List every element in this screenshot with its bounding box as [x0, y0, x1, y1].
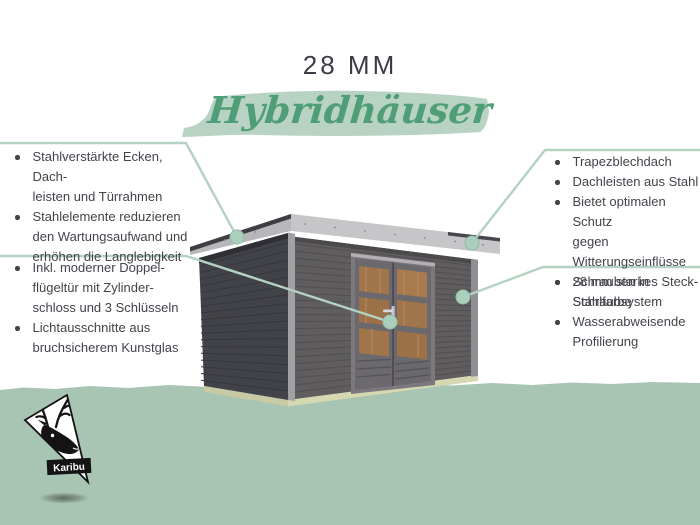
- ground: [0, 382, 700, 525]
- brush-stroke: [182, 91, 489, 137]
- callout-dot: [230, 230, 244, 244]
- logo-label: Karibu: [47, 458, 92, 475]
- callout-dot: [456, 290, 470, 304]
- corner-trim-left: [288, 233, 295, 402]
- corner-trim-right: [471, 259, 478, 377]
- logo-brand-text: Karibu: [53, 462, 85, 475]
- callout-dot: [465, 236, 479, 250]
- infographic-canvas: Karibu 28 MM Hybridhäuser Stahlverstärkt…: [0, 0, 700, 525]
- scene-graphic: Karibu: [0, 0, 700, 525]
- callout-line-top-left: [0, 143, 237, 237]
- logo-shadow: [39, 493, 89, 504]
- callout-line-top-right: [472, 150, 700, 243]
- callout-line-bottom-right: [463, 267, 700, 297]
- callout-dot: [383, 315, 397, 329]
